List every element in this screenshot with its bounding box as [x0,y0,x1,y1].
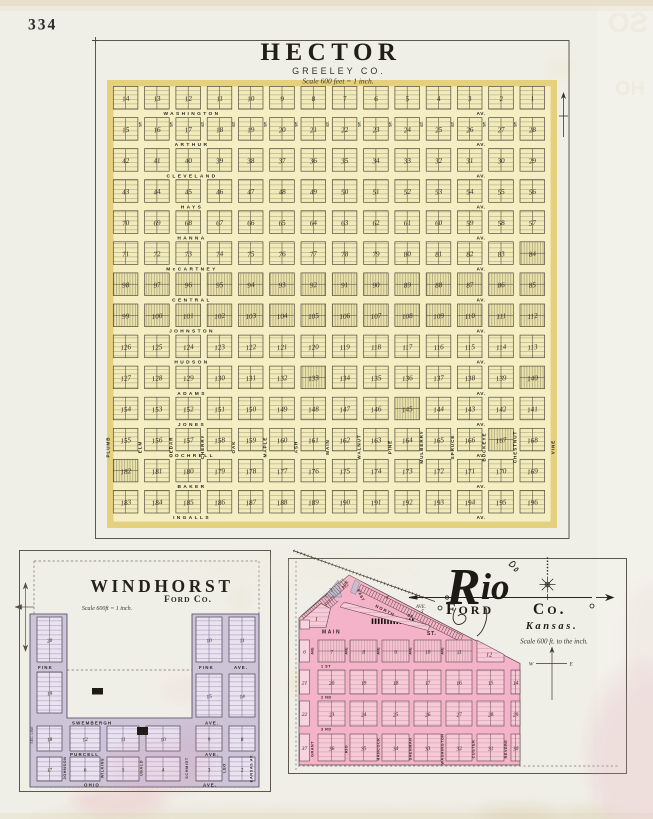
svg-text:16: 16 [153,126,162,135]
svg-text:ST.: ST. [450,121,455,127]
svg-text:37: 37 [301,746,308,752]
svg-text:78: 78 [341,250,350,259]
svg-text:154: 154 [120,405,132,414]
svg-text:75: 75 [247,250,256,259]
svg-text:131: 131 [245,374,257,383]
svg-text:114: 114 [496,343,508,352]
svg-text:192: 192 [402,498,414,507]
svg-text:WILKINS: WILKINS [101,758,105,778]
svg-text:167: 167 [495,436,507,445]
svg-text:172: 172 [433,467,445,476]
svg-text:SEC. LINE: SEC. LINE [30,726,34,744]
svg-text:97: 97 [153,281,162,290]
svg-text:103: 103 [245,312,257,321]
svg-text:Scale 600 feet = 1 inch.: Scale 600 feet = 1 inch. [302,77,373,86]
svg-text:108: 108 [402,312,414,321]
svg-text:174: 174 [370,467,382,476]
svg-text:VINE: VINE [550,440,555,455]
svg-text:189: 189 [308,498,320,507]
svg-text:125: 125 [151,343,163,352]
svg-text:McCARTNEY: McCARTNEY [166,267,217,273]
svg-text:135: 135 [370,374,382,383]
svg-text:137: 137 [433,374,445,383]
svg-text:Scale 600ft = 1 inch.: Scale 600ft = 1 inch. [82,605,132,612]
svg-text:27: 27 [497,126,506,135]
svg-text:LEO: LEO [223,763,227,773]
svg-text:ST.: ST. [419,121,424,127]
svg-text:168: 168 [527,436,539,445]
svg-text:ST.: ST. [294,121,299,127]
svg-text:64: 64 [309,219,318,228]
svg-text:18: 18 [393,680,400,687]
svg-text:50: 50 [341,188,350,197]
svg-text:86: 86 [497,281,506,290]
svg-text:23: 23 [372,126,381,135]
svg-text:OHIO: OHIO [84,782,100,787]
svg-text:AV.: AV. [477,111,486,117]
svg-text:59: 59 [466,219,475,228]
svg-text:106: 106 [339,312,351,321]
svg-text:PINE: PINE [388,440,393,455]
svg-text:HECTOR: HECTOR [261,39,402,66]
svg-text:160: 160 [276,436,288,445]
svg-text:HANCOCK: HANCOCK [377,738,381,761]
svg-text:27: 27 [456,712,463,719]
svg-text:AV.: AV. [477,173,486,179]
svg-text:149: 149 [276,405,288,414]
svg-text:183: 183 [120,498,132,507]
svg-text:58: 58 [497,219,506,228]
svg-text:3 RD: 3 RD [321,728,332,732]
svg-text:74: 74 [216,250,225,259]
svg-text:HO: HO [615,78,645,100]
svg-text:140: 140 [527,374,539,383]
svg-text:30: 30 [496,157,506,166]
svg-text:77: 77 [309,250,318,259]
svg-text:73: 73 [184,250,193,259]
svg-text:ST.: ST. [231,121,236,127]
svg-text:34: 34 [392,746,400,753]
svg-text:191: 191 [370,498,382,507]
svg-text:17: 17 [425,680,432,687]
svg-text:177: 177 [276,467,288,476]
svg-text:158: 158 [214,436,226,445]
svg-text:88: 88 [435,281,444,290]
svg-text:48: 48 [278,188,287,197]
svg-text:ST.: ST. [325,121,330,127]
svg-text:14: 14 [513,680,520,687]
svg-text:35: 35 [340,157,350,166]
svg-text:43: 43 [122,188,131,197]
svg-text:AV.: AV. [477,360,486,366]
svg-text:173: 173 [402,467,414,476]
svg-text:194: 194 [464,498,476,507]
svg-text:17: 17 [184,126,193,135]
svg-text:165: 165 [433,436,445,445]
svg-text:76: 76 [278,250,287,259]
svg-text:AV.: AV. [477,329,486,335]
svg-text:82: 82 [466,250,475,259]
svg-text:44: 44 [153,188,162,197]
svg-text:REVERE: REVERE [504,740,508,759]
svg-text:AVE.: AVE. [234,665,248,670]
svg-text:52: 52 [403,188,412,197]
svg-text:56: 56 [528,188,537,197]
svg-text:AV.: AV. [477,484,486,490]
svg-text:120: 120 [308,343,320,352]
svg-text:36: 36 [328,746,336,753]
svg-text:51: 51 [372,188,380,197]
svg-text:AVE: AVE [311,647,315,655]
svg-text:134: 134 [339,374,351,383]
svg-text:156: 156 [151,436,163,445]
svg-text:ST.: ST. [137,121,142,127]
svg-text:AVE: AVE [441,647,445,655]
svg-text:13: 13 [153,95,162,104]
svg-text:53: 53 [435,188,444,197]
svg-text:ST.: ST. [427,631,437,637]
svg-text:170: 170 [495,467,507,476]
svg-text:GRANT: GRANT [311,741,315,757]
svg-text:WASHINGTON: WASHINGTON [164,111,221,117]
svg-text:162: 162 [339,436,351,445]
svg-text:22: 22 [341,126,350,135]
svg-text:133: 133 [308,374,320,383]
svg-text:HAYS: HAYS [181,204,204,210]
svg-text:112: 112 [527,312,539,321]
svg-text:123: 123 [214,343,226,352]
svg-text:166: 166 [464,436,476,445]
svg-text:11: 11 [216,95,224,104]
svg-text:83: 83 [497,250,506,259]
svg-text:SWEMBERGH: SWEMBERGH [72,721,112,726]
svg-text:19: 19 [361,680,368,687]
svg-text:40: 40 [184,157,193,166]
svg-text:BAKER: BAKER [177,484,206,490]
svg-text:INGALLS: INGALLS [173,515,211,521]
svg-text:SPRUCE: SPRUCE [450,435,455,460]
svg-text:182: 182 [120,467,132,476]
svg-text:FINK: FINK [38,665,53,670]
svg-text:178: 178 [245,467,257,476]
svg-text:1 ST: 1 ST [321,664,331,668]
svg-text:153: 153 [151,405,163,414]
svg-text:159: 159 [245,436,257,445]
svg-text:MAIN: MAIN [325,439,330,455]
svg-text:AV.: AV. [477,204,486,210]
svg-text:115: 115 [464,343,476,352]
svg-text:151: 151 [214,405,226,414]
svg-text:33: 33 [402,157,412,166]
svg-text:126: 126 [120,343,132,352]
svg-text:98: 98 [122,281,131,290]
svg-text:143: 143 [464,405,476,414]
svg-text:190: 190 [339,498,351,507]
svg-text:89: 89 [403,281,412,290]
svg-text:RIO: RIO [345,745,349,753]
svg-text:175: 175 [339,467,351,476]
svg-text:141: 141 [527,405,539,414]
svg-text:32: 32 [434,157,444,166]
svg-text:136: 136 [402,374,414,383]
svg-text:90: 90 [372,281,381,290]
svg-text:E: E [568,662,573,668]
svg-text:45: 45 [184,188,193,197]
svg-text:84: 84 [528,250,537,259]
svg-text:169: 169 [527,467,539,476]
svg-text:91: 91 [341,281,349,290]
svg-text:66: 66 [247,219,256,228]
svg-text:MAIN: MAIN [322,630,341,636]
svg-text:37: 37 [277,157,287,166]
svg-text:21: 21 [309,126,317,135]
svg-text:24: 24 [361,712,368,719]
svg-text:ASH: ASH [294,441,299,454]
svg-text:334: 334 [28,17,57,34]
svg-text:65: 65 [278,219,287,228]
svg-text:29: 29 [513,712,520,719]
svg-text:47: 47 [247,188,256,197]
svg-text:AV.: AV. [477,391,486,397]
svg-text:176: 176 [308,467,320,476]
svg-text:155: 155 [120,436,132,445]
svg-text:113: 113 [527,343,539,352]
svg-text:93: 93 [278,281,287,290]
svg-text:ST.: ST. [169,121,174,127]
svg-text:MAPLE: MAPLE [262,437,267,458]
svg-text:ST.: ST. [388,121,393,127]
svg-text:CENTRAL: CENTRAL [172,298,212,304]
svg-text:147: 147 [339,405,351,414]
svg-text:15: 15 [488,680,495,687]
svg-text:81: 81 [435,250,443,259]
svg-text:PLUMB: PLUMB [106,437,111,458]
svg-text:25: 25 [393,712,400,719]
svg-text:116: 116 [433,343,445,352]
svg-text:187: 187 [245,498,257,507]
svg-text:AV.: AV. [477,422,486,428]
svg-text:163: 163 [370,436,382,445]
svg-text:38: 38 [246,157,256,166]
svg-text:105: 105 [308,312,320,321]
svg-text:152: 152 [183,405,195,414]
svg-text:28: 28 [488,712,495,719]
svg-text:20: 20 [278,126,287,135]
svg-text:20: 20 [329,680,336,687]
svg-text:171: 171 [464,467,476,476]
svg-text:46: 46 [216,188,225,197]
svg-text:60: 60 [435,219,444,228]
svg-text:AV.: AV. [477,267,486,273]
svg-text:145: 145 [402,405,414,414]
svg-text:ADAMS: ADAMS [177,391,207,397]
svg-text:2 ND: 2 ND [321,696,332,700]
svg-text:79: 79 [372,250,381,259]
svg-text:22: 22 [302,712,308,718]
svg-text:185: 185 [183,498,195,507]
svg-text:67: 67 [216,219,225,228]
svg-text:61: 61 [403,219,411,228]
svg-text:JOHNSTON: JOHNSTON [169,329,215,335]
svg-text:23: 23 [329,712,336,719]
svg-text:HUDSON: HUDSON [174,360,209,366]
svg-text:AV.: AV. [477,235,486,241]
svg-text:FINK: FINK [199,665,214,670]
svg-text:179: 179 [214,467,226,476]
svg-text:16: 16 [456,680,463,687]
svg-text:122: 122 [245,343,257,352]
svg-text:W: W [529,662,534,668]
svg-text:AVE.: AVE. [415,605,426,610]
svg-text:24: 24 [403,126,412,135]
svg-text:10: 10 [425,649,432,656]
svg-text:92: 92 [309,281,318,290]
svg-text:12: 12 [486,653,492,659]
svg-text:180: 180 [183,467,195,476]
svg-text:118: 118 [370,343,382,352]
svg-text:39: 39 [215,157,225,166]
svg-text:14: 14 [122,95,131,104]
svg-text:35: 35 [360,746,368,753]
svg-text:Scale 600 ft. to the inch.: Scale 600 ft. to the inch. [520,638,588,646]
svg-text:95: 95 [216,281,225,290]
svg-text:CUSTER: CUSTER [472,740,476,759]
svg-text:157: 157 [183,436,195,445]
svg-text:107: 107 [370,312,382,321]
svg-text:99: 99 [122,312,131,321]
svg-text:142: 142 [495,405,507,414]
svg-text:72: 72 [153,250,162,259]
svg-text:63: 63 [341,219,350,228]
svg-text:GREELEY CO.: GREELEY CO. [292,66,386,76]
svg-text:33: 33 [424,746,432,753]
svg-text:57: 57 [528,219,537,228]
svg-text:BUCKEYE: BUCKEYE [481,432,486,461]
svg-text:121: 121 [276,343,288,352]
svg-text:148: 148 [308,405,320,414]
svg-text:COCHRELL: COCHRELL [169,453,215,459]
svg-text:195: 195 [495,498,507,507]
svg-text:11: 11 [456,649,462,656]
svg-text:6: 6 [303,650,306,656]
svg-text:PURCELL: PURCELL [70,752,99,757]
svg-text:186: 186 [214,498,226,507]
svg-text:193: 193 [433,498,445,507]
svg-text:109: 109 [433,312,445,321]
svg-text:132: 132 [276,374,288,383]
svg-text:71: 71 [122,250,130,259]
svg-text:127: 127 [120,374,132,383]
svg-text:68: 68 [184,219,193,228]
svg-text:150: 150 [245,405,257,414]
svg-text:101: 101 [183,312,195,321]
svg-text:26: 26 [466,126,475,135]
svg-text:124: 124 [183,343,195,352]
svg-text:AV.: AV. [477,142,486,148]
svg-text:42: 42 [122,157,131,166]
svg-text:SO: SO [608,7,648,38]
svg-text:94: 94 [247,281,256,290]
svg-text:ST.: ST. [513,121,518,127]
svg-text:100: 100 [151,312,163,321]
svg-text:15: 15 [122,126,131,135]
svg-text:26: 26 [425,712,432,719]
svg-text:34: 34 [371,157,381,166]
svg-text:161: 161 [308,436,320,445]
svg-text:WASHINGTON: WASHINGTON [441,733,445,764]
svg-text:41: 41 [153,157,161,166]
svg-text:111: 111 [496,312,507,321]
svg-text:21: 21 [302,681,308,687]
svg-text:184: 184 [151,498,163,507]
svg-text:MULBERRY: MULBERRY [419,430,424,463]
svg-text:85: 85 [528,281,537,290]
svg-text:196: 196 [527,498,539,507]
svg-text:FORD CO.: FORD CO. [164,595,212,605]
svg-text:80: 80 [403,250,412,259]
svg-text:70: 70 [122,219,131,228]
svg-text:AV.: AV. [477,515,486,521]
svg-text:ELM: ELM [137,441,142,454]
svg-text:29: 29 [528,157,537,166]
svg-text:69: 69 [153,219,162,228]
svg-text:139: 139 [495,374,507,383]
svg-text:1: 1 [315,617,318,623]
svg-text:87: 87 [466,281,475,290]
svg-text:128: 128 [151,374,163,383]
svg-text:49: 49 [309,188,318,197]
svg-text:31: 31 [465,157,474,166]
svg-text:WALNUT: WALNUT [356,434,361,459]
svg-text:36: 36 [308,157,318,166]
svg-text:25: 25 [435,126,444,135]
svg-text:19: 19 [247,126,256,135]
svg-text:ST.: ST. [262,121,267,127]
svg-text:KANSAS AV.: KANSAS AV. [250,754,254,783]
svg-text:SHERMAN: SHERMAN [409,738,413,761]
svg-text:AVE: AVE [409,647,413,655]
svg-text:10: 10 [247,95,256,104]
svg-text:CEDAR: CEDAR [169,436,174,457]
svg-text:ST.: ST. [481,121,486,127]
svg-text:119: 119 [339,343,351,352]
svg-text:164: 164 [402,436,414,445]
svg-text:JOHNSON: JOHNSON [63,757,67,780]
svg-text:28: 28 [528,126,537,135]
svg-text:129: 129 [183,374,195,383]
svg-text:146: 146 [370,405,382,414]
svg-text:110: 110 [464,312,476,321]
svg-text:AVE: AVE [345,647,349,655]
svg-text:32: 32 [455,746,463,753]
svg-text:AVE: AVE [377,647,381,655]
svg-text:JONES: JONES [178,422,206,428]
svg-text:ST.: ST. [200,121,205,127]
svg-text:ST.: ST. [356,121,361,127]
svg-text:188: 188 [276,498,288,507]
svg-text:CHESTNUT: CHESTNUT [513,431,518,464]
svg-text:AVE.: AVE. [203,782,217,787]
svg-text:OAK: OAK [231,441,236,454]
svg-text:CLEVELAND: CLEVELAND [167,173,218,179]
svg-text:HANNA: HANNA [177,235,206,241]
svg-text:18: 18 [216,126,225,135]
svg-text:144: 144 [433,405,445,414]
svg-text:ARTHUR: ARTHUR [175,142,210,148]
svg-text:31: 31 [487,746,495,753]
svg-text:62: 62 [372,219,381,228]
svg-text:117: 117 [402,343,414,352]
